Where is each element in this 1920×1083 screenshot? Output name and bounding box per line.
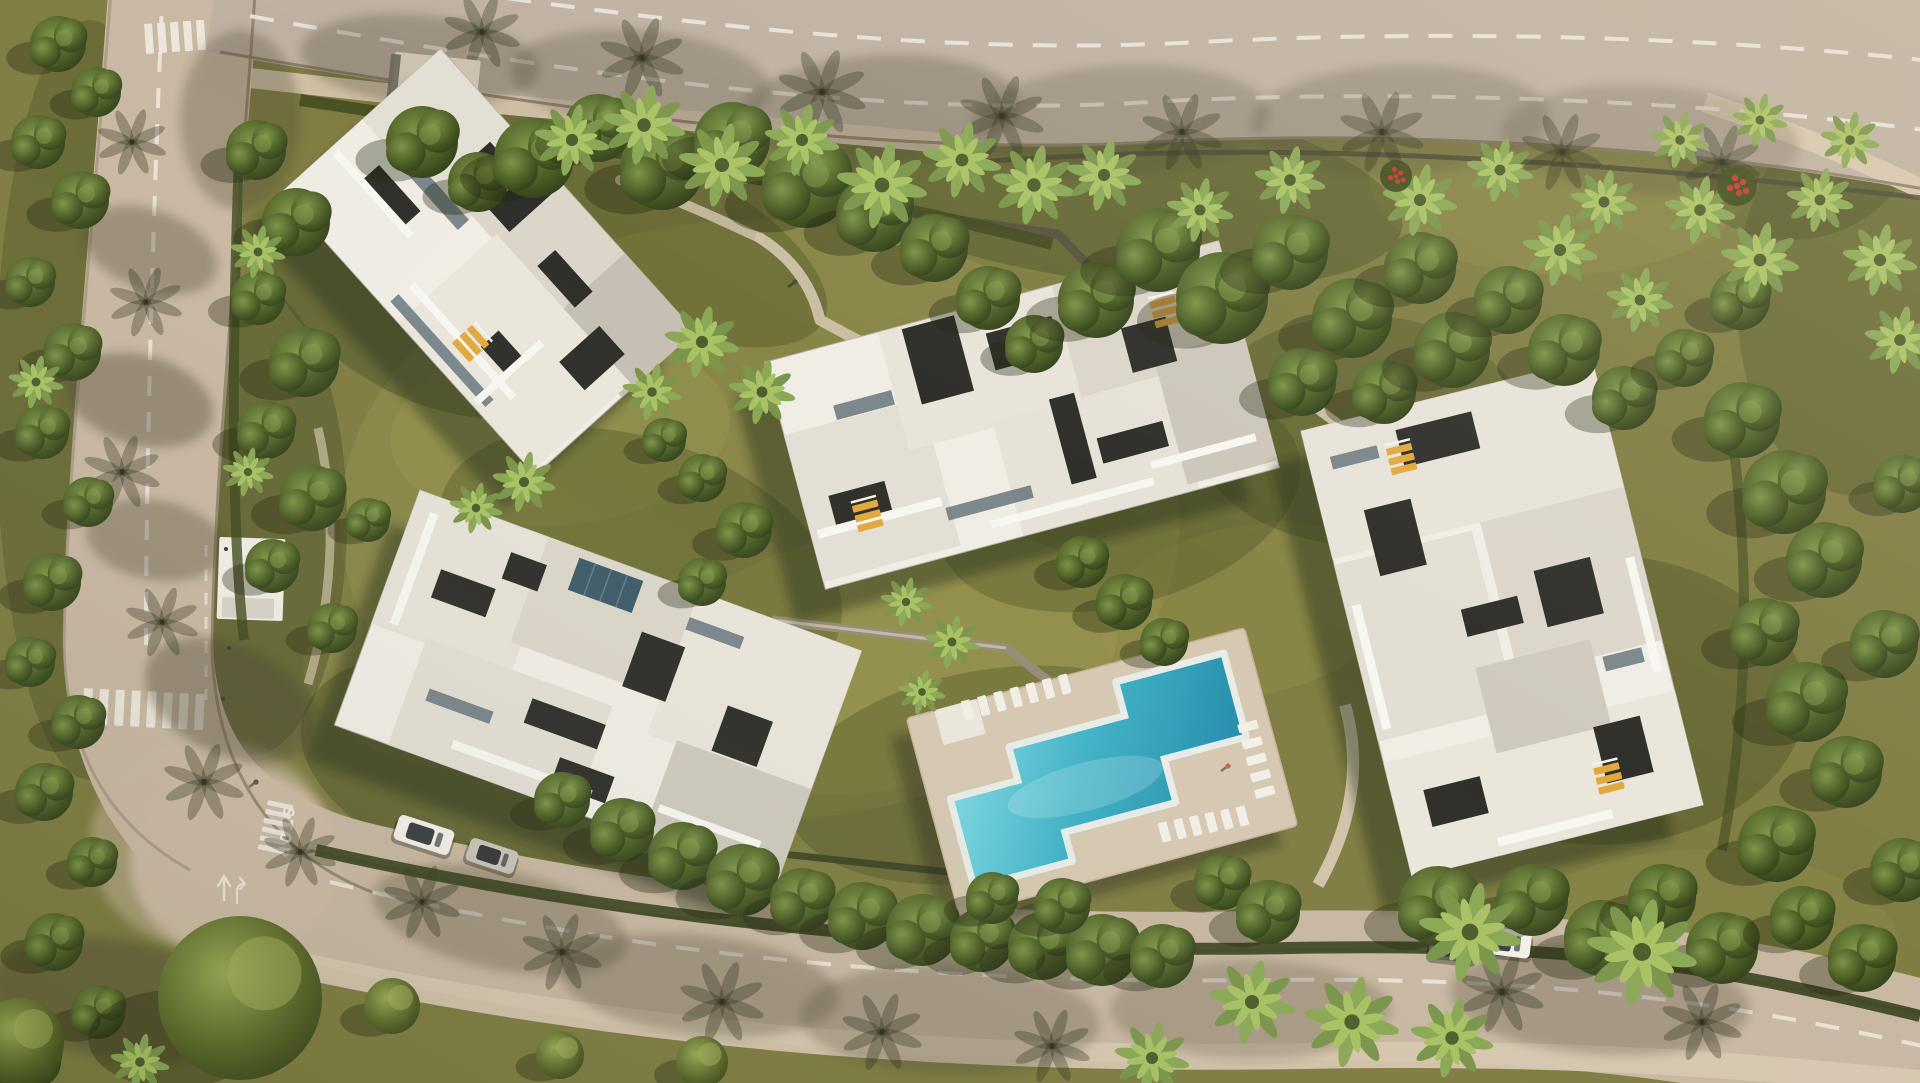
sunlight-overlay bbox=[0, 0, 1920, 1083]
aerial-render-scene: STOP bbox=[0, 0, 1920, 1083]
aerial-render-figure: STOP bbox=[0, 0, 1920, 1083]
